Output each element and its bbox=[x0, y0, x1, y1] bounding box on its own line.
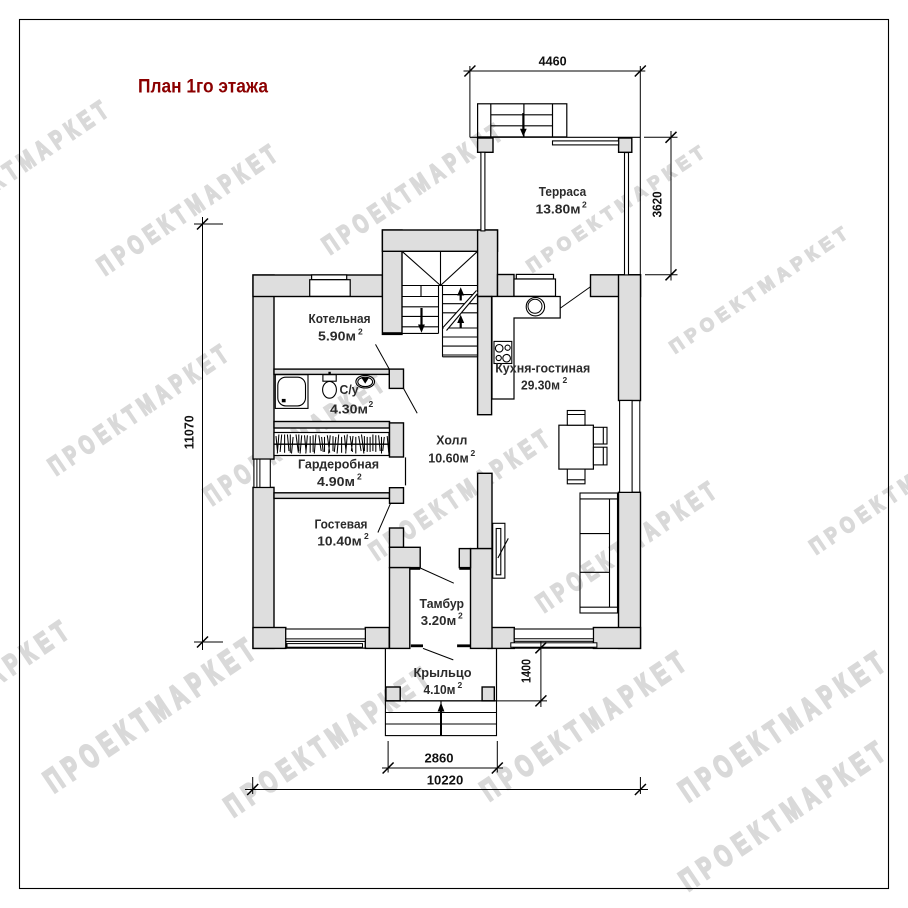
svg-text:10.40м: 10.40м bbox=[317, 535, 362, 549]
svg-text:Гардеробная: Гардеробная bbox=[298, 458, 379, 472]
svg-text:2: 2 bbox=[369, 399, 374, 409]
svg-text:10220: 10220 bbox=[427, 773, 464, 788]
svg-text:2: 2 bbox=[471, 448, 476, 458]
svg-text:2: 2 bbox=[358, 327, 363, 337]
svg-text:Котельная: Котельная bbox=[309, 312, 371, 326]
svg-text:1400: 1400 bbox=[519, 659, 534, 683]
svg-text:2: 2 bbox=[357, 472, 362, 482]
svg-text:3.20м: 3.20м bbox=[421, 614, 457, 628]
svg-text:4.30м: 4.30м bbox=[330, 402, 368, 416]
svg-text:2: 2 bbox=[458, 680, 463, 690]
svg-text:Тамбур: Тамбур bbox=[420, 597, 465, 611]
svg-text:5.90м: 5.90м bbox=[318, 330, 356, 344]
svg-text:29.30м: 29.30м bbox=[521, 378, 560, 392]
svg-text:2: 2 bbox=[458, 611, 463, 621]
svg-text:Кухня-гостиная: Кухня-гостиная bbox=[495, 361, 590, 375]
svg-text:Терраса: Терраса bbox=[539, 185, 587, 199]
svg-text:План 1го этажа: План 1го этажа bbox=[138, 76, 268, 98]
svg-text:С/у: С/у bbox=[340, 383, 359, 397]
svg-text:2: 2 bbox=[364, 531, 369, 541]
svg-text:4.90м: 4.90м bbox=[317, 475, 355, 489]
svg-text:Холл: Холл bbox=[436, 433, 467, 447]
svg-text:Гостевая: Гостевая bbox=[315, 517, 368, 531]
svg-text:10.60м: 10.60м bbox=[428, 451, 469, 465]
svg-text:4460: 4460 bbox=[539, 54, 567, 69]
svg-text:2: 2 bbox=[582, 200, 587, 210]
svg-text:3620: 3620 bbox=[650, 191, 665, 217]
svg-text:2: 2 bbox=[563, 375, 568, 385]
svg-text:4.10м: 4.10м bbox=[424, 683, 456, 697]
svg-text:Крыльцо: Крыльцо bbox=[414, 666, 472, 680]
svg-text:2860: 2860 bbox=[425, 751, 454, 766]
svg-text:11070: 11070 bbox=[182, 415, 197, 449]
svg-text:13.80м: 13.80м bbox=[536, 203, 581, 217]
